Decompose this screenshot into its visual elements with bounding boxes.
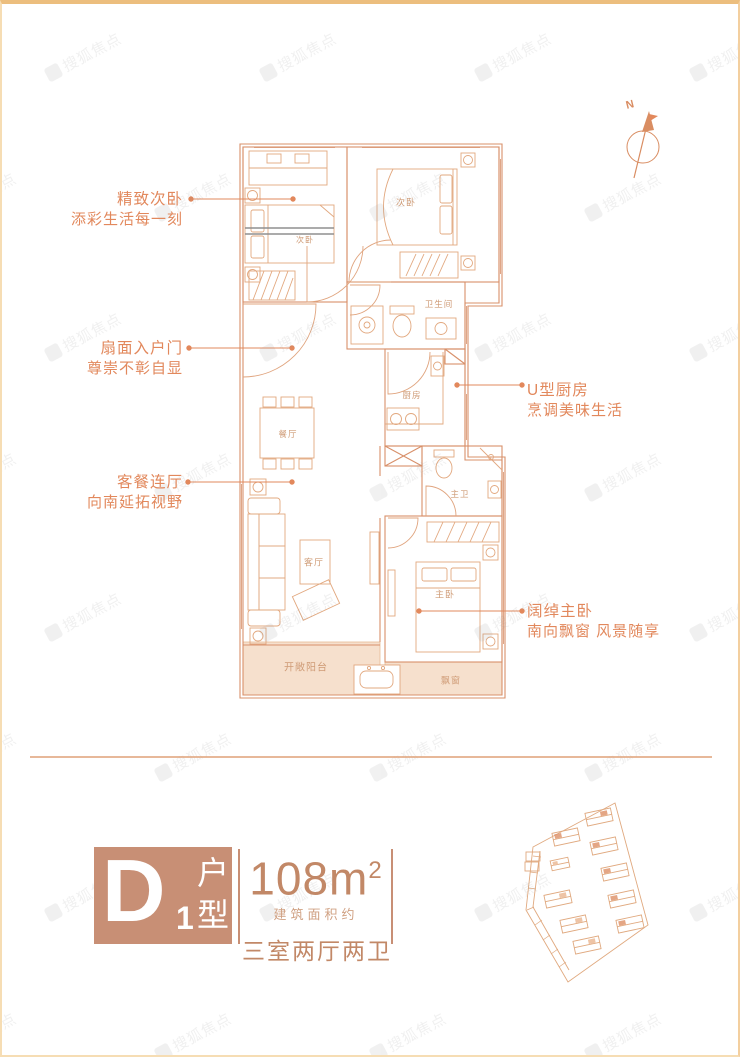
annotation-kitchen: U型厨房 烹调美味生活: [527, 381, 623, 421]
annotation-subtitle: 添彩生活每一刻: [71, 210, 183, 230]
unit-layout-summary: 三室两厅两卫: [242, 932, 390, 966]
room-label-bedroom-right: 次卧: [396, 196, 416, 209]
area-superscript: 2: [368, 857, 382, 884]
unit-area-caption: 建筑面积约: [242, 904, 390, 923]
site-plan-map: [525, 803, 648, 982]
annotation-master-bedroom: 阔绰主卧 南向飘窗 风景随享: [527, 602, 660, 642]
unit-letter: D: [102, 838, 166, 943]
unit-type-char-bottom: 型: [197, 898, 229, 932]
unit-number: 1: [176, 900, 194, 937]
unit-area-block: 108m2 建筑面积约 三室两厅两卫: [242, 846, 390, 966]
annotation-title: U型厨房: [527, 381, 623, 401]
room-label-living: 客厅: [304, 556, 324, 569]
room-label-master-bedroom: 主卧: [435, 588, 455, 601]
unit-area-value: 108m2: [242, 846, 390, 903]
annotation-second-bedroom: 精致次卧 添彩生活每一刻: [71, 190, 183, 230]
info-divider-left: [238, 849, 240, 944]
annotation-living-dining: 客餐连厅 向南延拓视野: [87, 473, 183, 513]
info-divider-right: [391, 849, 393, 944]
annotation-title: 客餐连厅: [87, 473, 183, 493]
room-label-bedroom-left: 次卧: [296, 235, 314, 246]
annotation-leaders: [186, 197, 524, 613]
room-label-master-bath: 主卫: [450, 488, 469, 500]
annotation-title: 精致次卧: [71, 190, 183, 210]
section-divider: [30, 756, 712, 758]
floor-plan-page: 搜狐焦点搜狐焦点搜狐焦点搜狐焦点搜狐焦点搜狐焦点搜狐焦点搜狐焦点搜狐焦点搜狐焦点…: [0, 0, 740, 1057]
room-label-balcony: 开敞阳台: [284, 659, 328, 674]
room-label-bay-window: 飘窗: [441, 674, 461, 687]
annotation-subtitle: 烹调美味生活: [527, 401, 623, 421]
annotation-entry-door: 扇面入户门 尊崇不彰自显: [87, 339, 183, 379]
annotation-title: 扇面入户门: [87, 339, 183, 359]
compass-icon: [627, 111, 659, 178]
room-label-dining: 餐厅: [278, 428, 297, 440]
unit-type-badge: D 1 户 型: [94, 847, 232, 944]
annotation-subtitle: 南向飘窗 风景随享: [527, 622, 660, 642]
unit-type-char-top: 户: [197, 856, 229, 890]
door-arcs: [243, 240, 456, 548]
room-label-bathroom: 卫生间: [425, 298, 454, 310]
area-number: 108m: [249, 852, 368, 904]
annotation-title: 阔绰主卧: [527, 602, 660, 622]
annotation-subtitle: 向南延拓视野: [87, 493, 183, 513]
room-label-kitchen: 厨房: [402, 389, 421, 401]
furniture: [245, 151, 502, 694]
annotation-subtitle: 尊崇不彰自显: [87, 359, 183, 379]
